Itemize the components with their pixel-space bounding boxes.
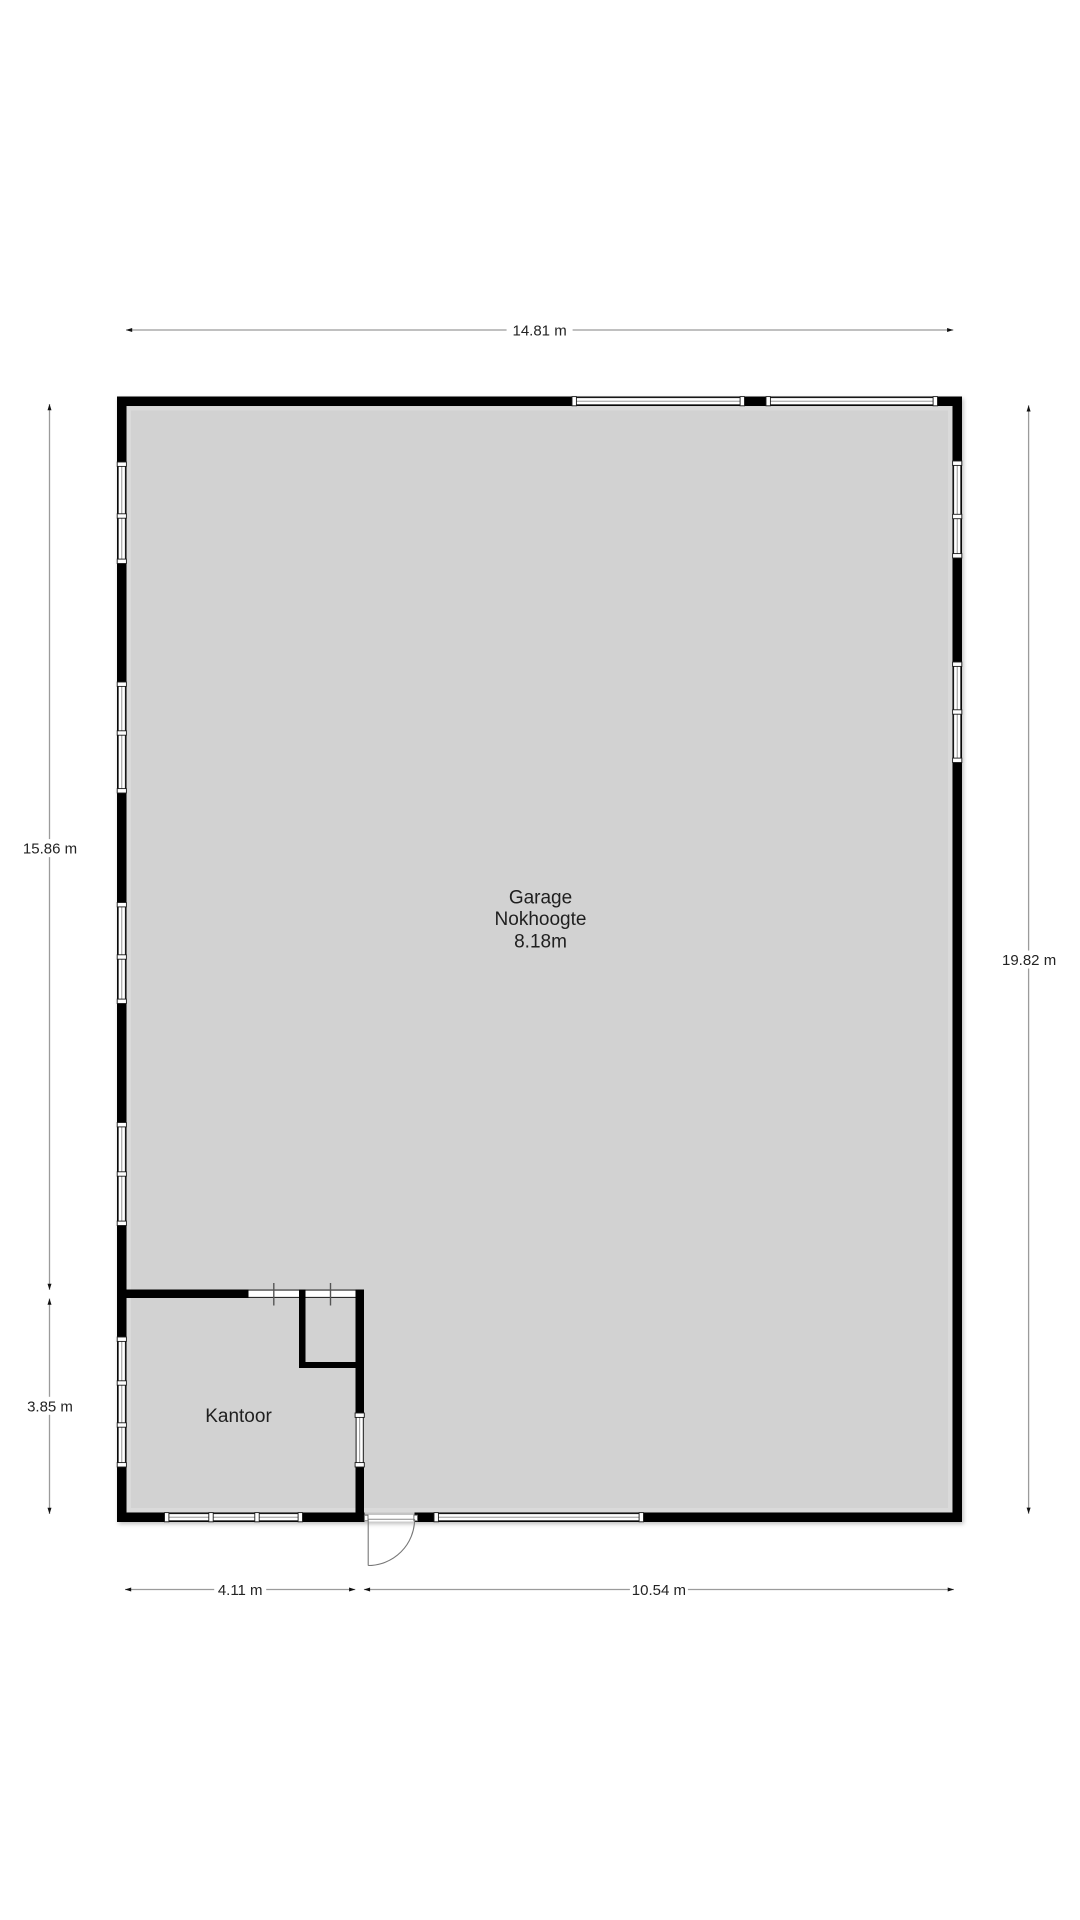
svg-text:15.86 m: 15.86 m xyxy=(23,841,77,858)
svg-text:Garage: Garage xyxy=(509,888,572,909)
svg-text:4.11 m: 4.11 m xyxy=(218,1582,263,1599)
svg-text:14.81 m: 14.81 m xyxy=(512,322,566,339)
svg-text:10.54 m: 10.54 m xyxy=(632,1582,686,1599)
svg-text:8.18m: 8.18m xyxy=(514,932,567,953)
svg-text:Nokhoogte: Nokhoogte xyxy=(495,909,587,930)
svg-text:3.85 m: 3.85 m xyxy=(27,1398,73,1415)
svg-text:Kantoor: Kantoor xyxy=(205,1406,272,1427)
svg-text:19.82 m: 19.82 m xyxy=(1002,952,1056,969)
